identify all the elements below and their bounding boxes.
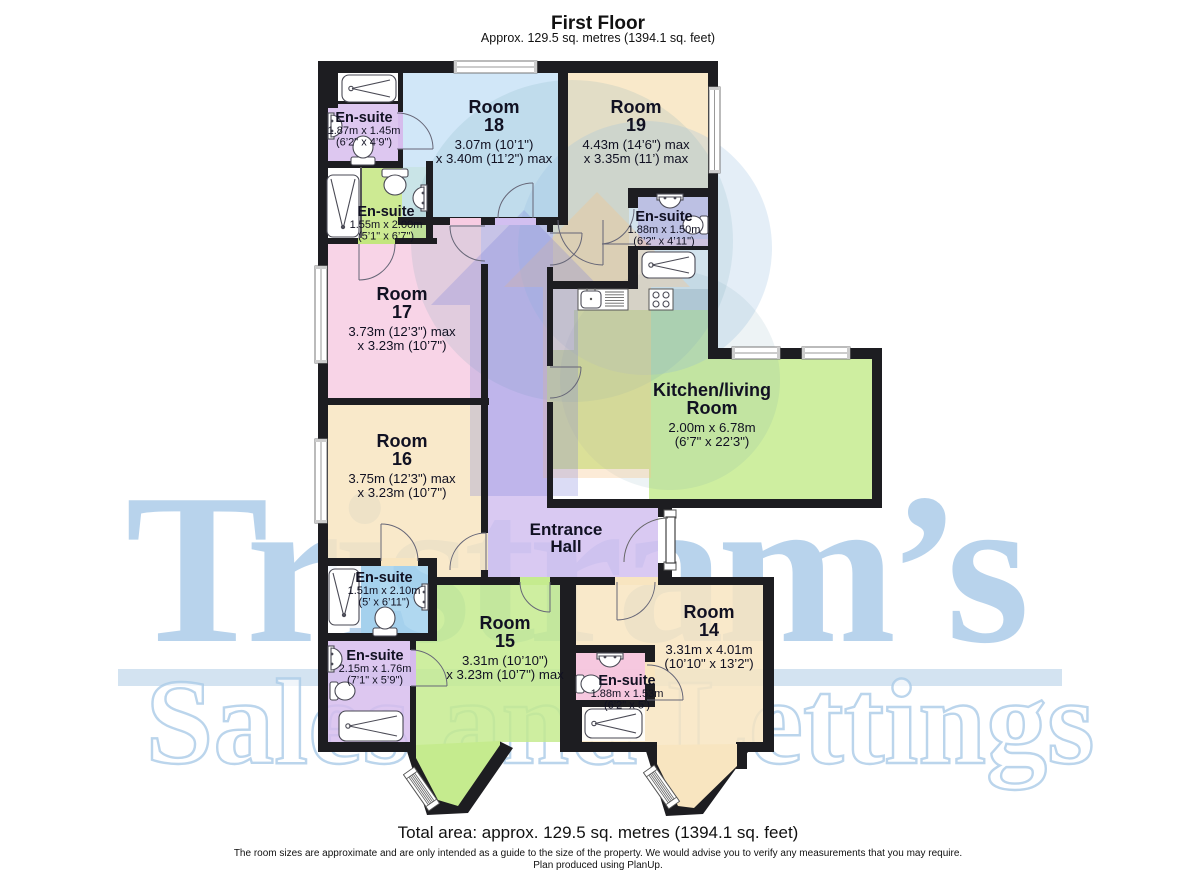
svg-text:En-suite2.15m x 1.76m(7’1" x 5: En-suite2.15m x 1.76m(7’1" x 5’9") xyxy=(339,648,412,687)
svg-text:Approx. 129.5 sq. metres (1394: Approx. 129.5 sq. metres (1394.1 sq. fee… xyxy=(481,31,715,45)
svg-text:En-suite1.88m x 1.50m(6’2" x 4: En-suite1.88m x 1.50m(6’2" x 4’11") xyxy=(628,209,701,248)
svg-text:En-suite1.55m x 2.00m(5’1" x 6: En-suite1.55m x 2.00m(5’1" x 6’7") xyxy=(350,204,423,243)
svg-text:The room sizes are approximate: The room sizes are approximate and are o… xyxy=(234,848,962,859)
svg-text:Plan produced using PlanUp.: Plan produced using PlanUp. xyxy=(533,860,663,871)
svg-text:En-suite1.51m x 2.10m(5’ x 6’1: En-suite1.51m x 2.10m(5’ x 6’11") xyxy=(348,570,421,609)
svg-text:Total area: approx. 129.5 sq.: Total area: approx. 129.5 sq. metres (13… xyxy=(398,823,799,842)
svg-text:En-suite1.87m x 1.45m(6’2" x 4: En-suite1.87m x 1.45m(6’2" x 4’9") xyxy=(328,110,401,149)
